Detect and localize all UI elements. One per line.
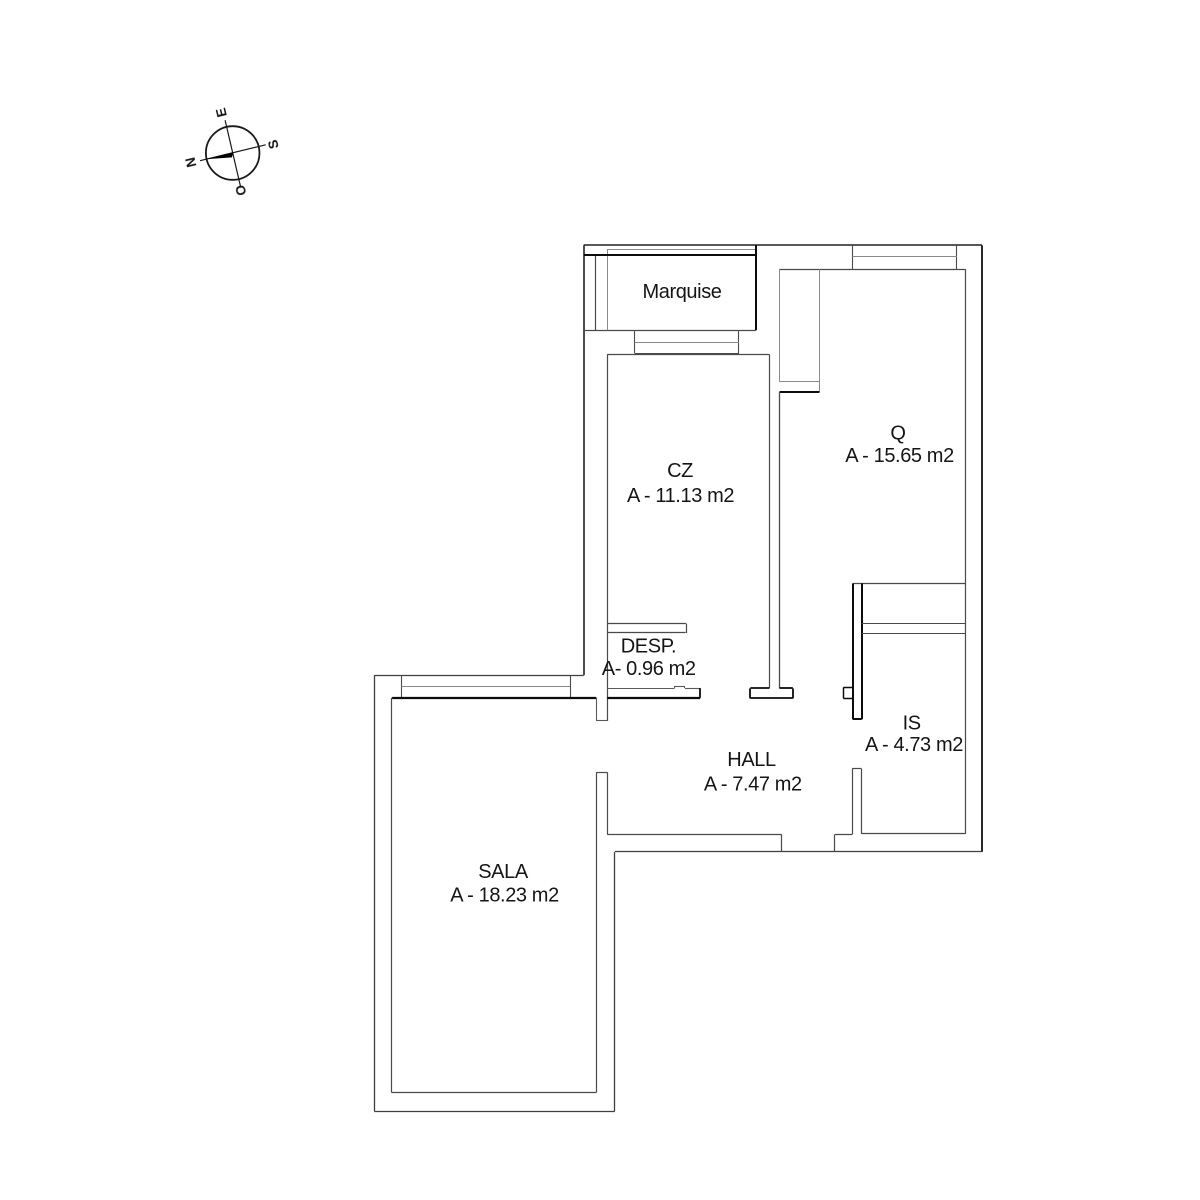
svg-text:A - 7.47 m2: A - 7.47 m2 — [704, 774, 802, 796]
svg-text:DESP.: DESP. — [621, 636, 676, 658]
svg-text:CZ: CZ — [667, 460, 693, 482]
svg-text:A - 18.23 m2: A - 18.23 m2 — [450, 885, 559, 907]
svg-text:A - 4.73 m2: A - 4.73 m2 — [865, 734, 963, 756]
svg-text:IS: IS — [903, 713, 921, 735]
svg-text:SALA: SALA — [478, 861, 529, 883]
svg-text:S: S — [265, 138, 282, 150]
svg-text:E: E — [213, 106, 230, 118]
svg-text:HALL: HALL — [727, 749, 776, 771]
svg-text:A - 15.65 m2: A - 15.65 m2 — [845, 445, 954, 467]
svg-text:A - 11.13 m2: A - 11.13 m2 — [627, 485, 734, 507]
svg-text:O: O — [232, 183, 249, 197]
svg-text:Marquise: Marquise — [642, 281, 721, 303]
svg-text:A- 0.96 m2: A- 0.96 m2 — [602, 658, 696, 680]
svg-text:Q: Q — [890, 423, 905, 445]
svg-text:N: N — [183, 156, 200, 169]
